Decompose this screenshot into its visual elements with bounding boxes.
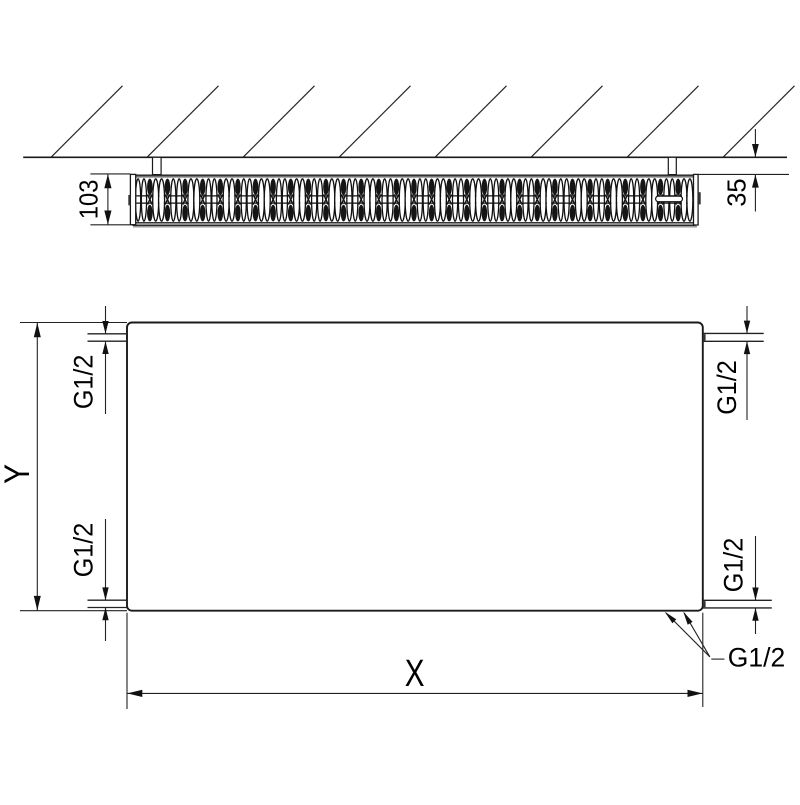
svg-text:G1/2: G1/2 bbox=[728, 642, 785, 672]
svg-text:Y: Y bbox=[0, 464, 36, 484]
svg-text:G1/2: G1/2 bbox=[720, 538, 749, 593]
svg-text:G1/2: G1/2 bbox=[70, 523, 99, 578]
svg-text:G1/2: G1/2 bbox=[70, 355, 99, 410]
svg-text:G1/2: G1/2 bbox=[713, 360, 742, 415]
svg-text:103: 103 bbox=[76, 180, 104, 220]
svg-text:35: 35 bbox=[723, 178, 751, 206]
svg-text:X: X bbox=[405, 653, 425, 695]
